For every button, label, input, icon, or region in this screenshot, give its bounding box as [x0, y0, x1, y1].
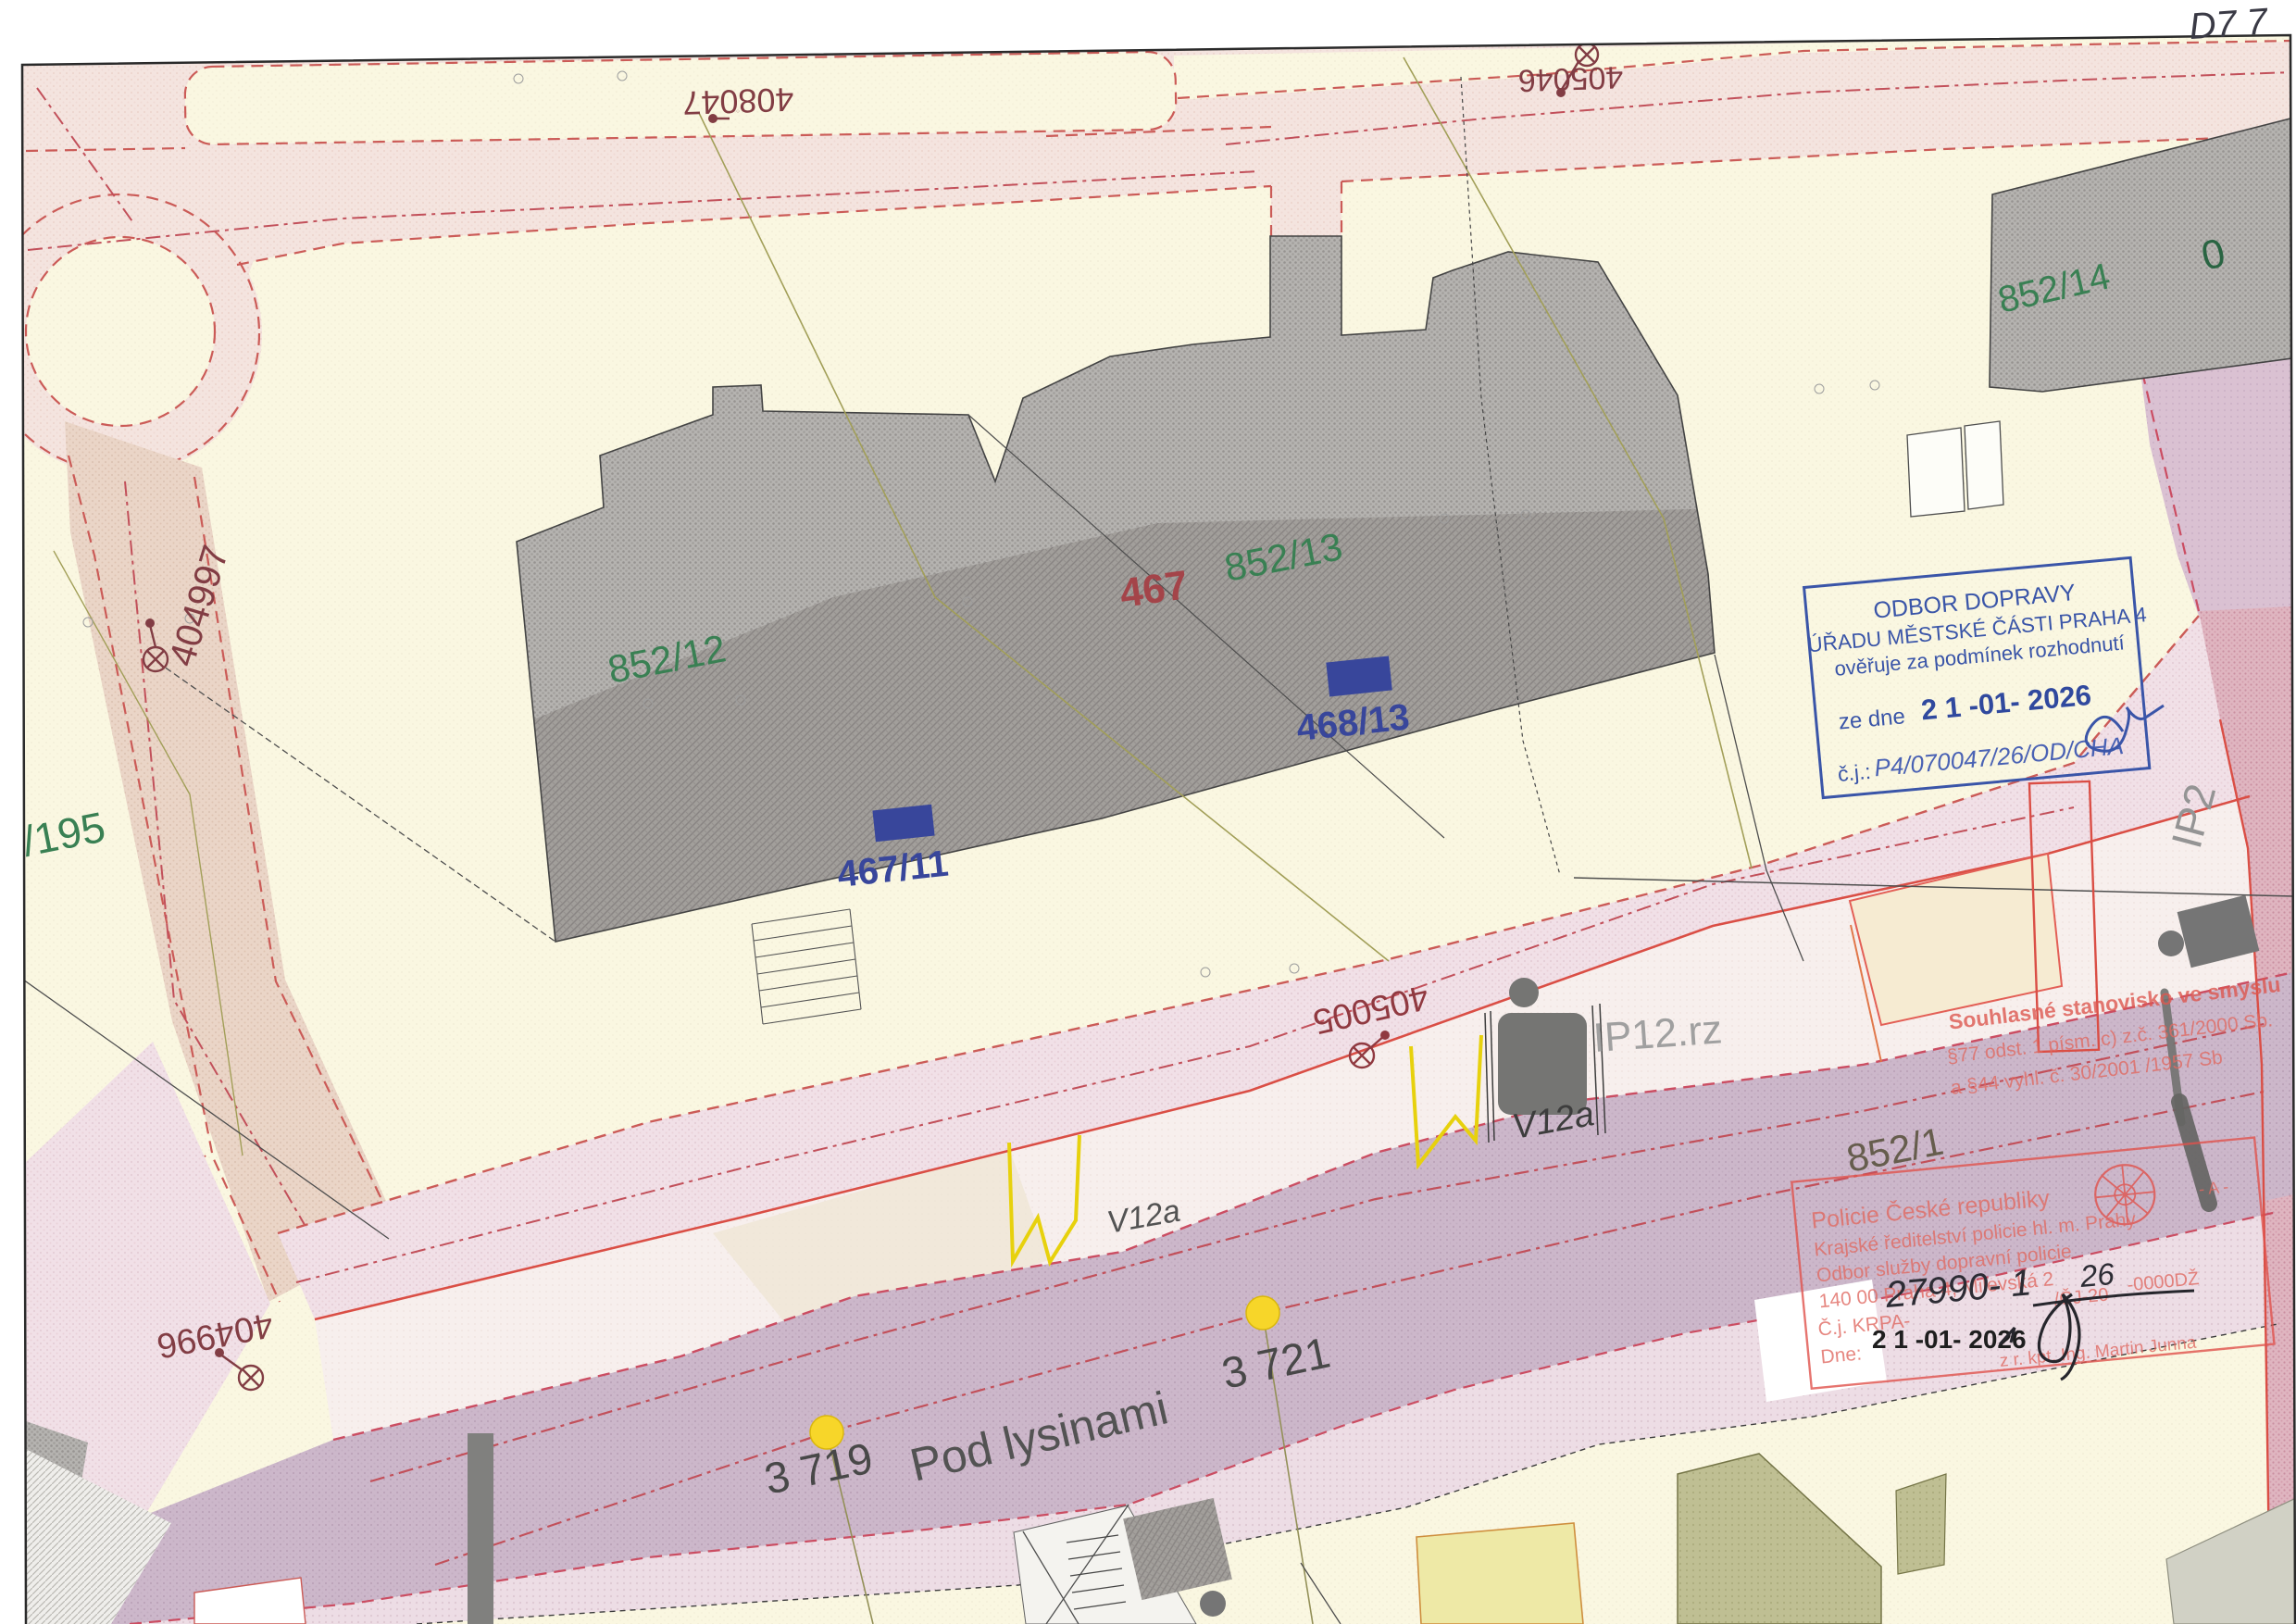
svg-text:č.j.:: č.j.:: [1837, 759, 1872, 786]
svg-text:D7 7: D7 7: [2188, 1, 2270, 47]
svg-text:26: 26: [2078, 1256, 2115, 1293]
svg-text:Dne:: Dne:: [1820, 1343, 1863, 1368]
svg-text:- A -: - A -: [2198, 1178, 2229, 1199]
